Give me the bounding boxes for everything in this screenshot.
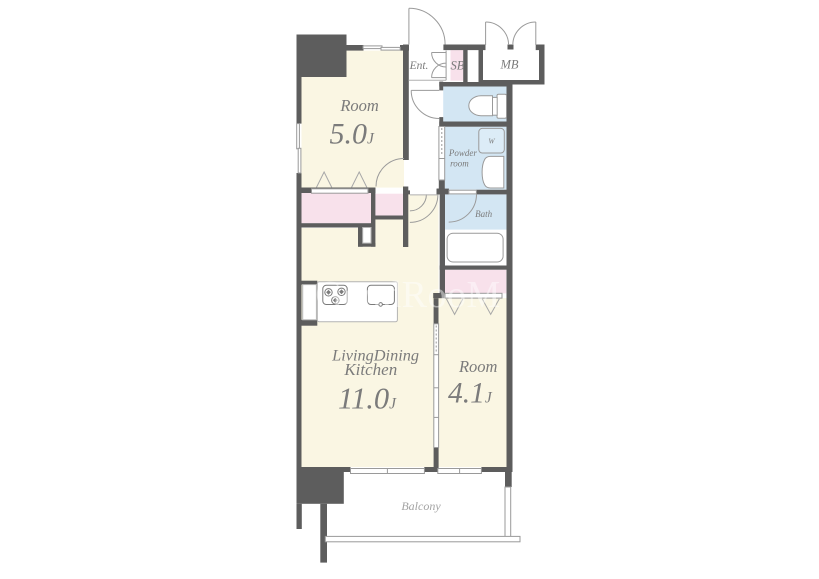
- svg-text:Room: Room: [458, 357, 498, 376]
- svg-text:Powder: Powder: [448, 148, 477, 158]
- svg-text:Bath: Bath: [475, 209, 492, 219]
- svg-text:SB: SB: [451, 58, 465, 72]
- svg-text:room: room: [450, 158, 469, 168]
- svg-text:W: W: [488, 136, 495, 145]
- svg-text:Kitchen: Kitchen: [343, 360, 397, 379]
- svg-text:Ent.: Ent.: [409, 60, 429, 72]
- svg-text:MB: MB: [499, 57, 518, 71]
- svg-text:11.0J: 11.0J: [338, 382, 397, 416]
- svg-text:Room: Room: [339, 96, 379, 115]
- svg-text:Balcony: Balcony: [401, 499, 441, 513]
- svg-text:GoodRooM: GoodRooM: [315, 274, 501, 316]
